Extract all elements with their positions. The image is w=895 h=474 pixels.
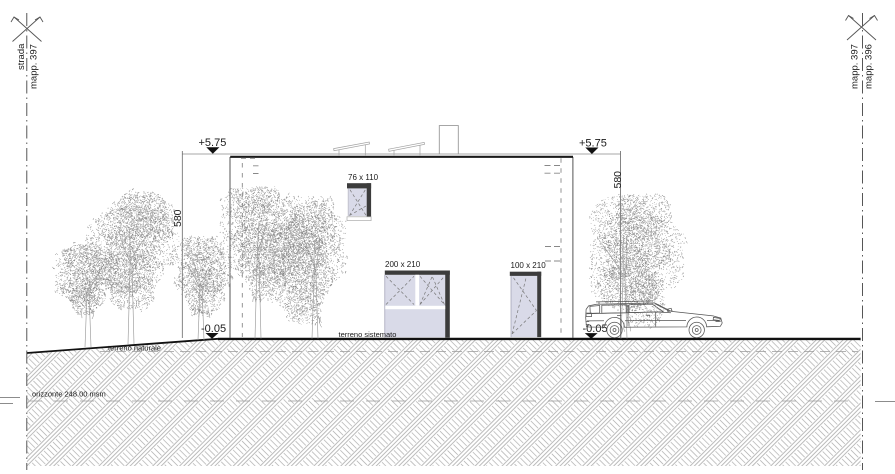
svg-text:terreno naturale: terreno naturale: [108, 344, 161, 353]
svg-text:terreno sistemato: terreno sistemato: [339, 330, 397, 339]
svg-text:+5.75: +5.75: [199, 137, 227, 149]
svg-text:580: 580: [612, 171, 624, 189]
svg-text:mapp. 396: mapp. 396: [864, 44, 875, 89]
svg-text:mapp. 397: mapp. 397: [29, 44, 40, 89]
svg-text:mapp. 397: mapp. 397: [850, 44, 861, 89]
svg-text:580: 580: [172, 209, 184, 227]
svg-text:200 x 210: 200 x 210: [385, 260, 421, 269]
svg-text:100 x 210: 100 x 210: [511, 261, 547, 270]
svg-text:strada: strada: [16, 43, 27, 70]
svg-text:76 x 110: 76 x 110: [348, 173, 379, 182]
svg-text:orizzonte 248.00 msm: orizzonte 248.00 msm: [32, 390, 106, 399]
